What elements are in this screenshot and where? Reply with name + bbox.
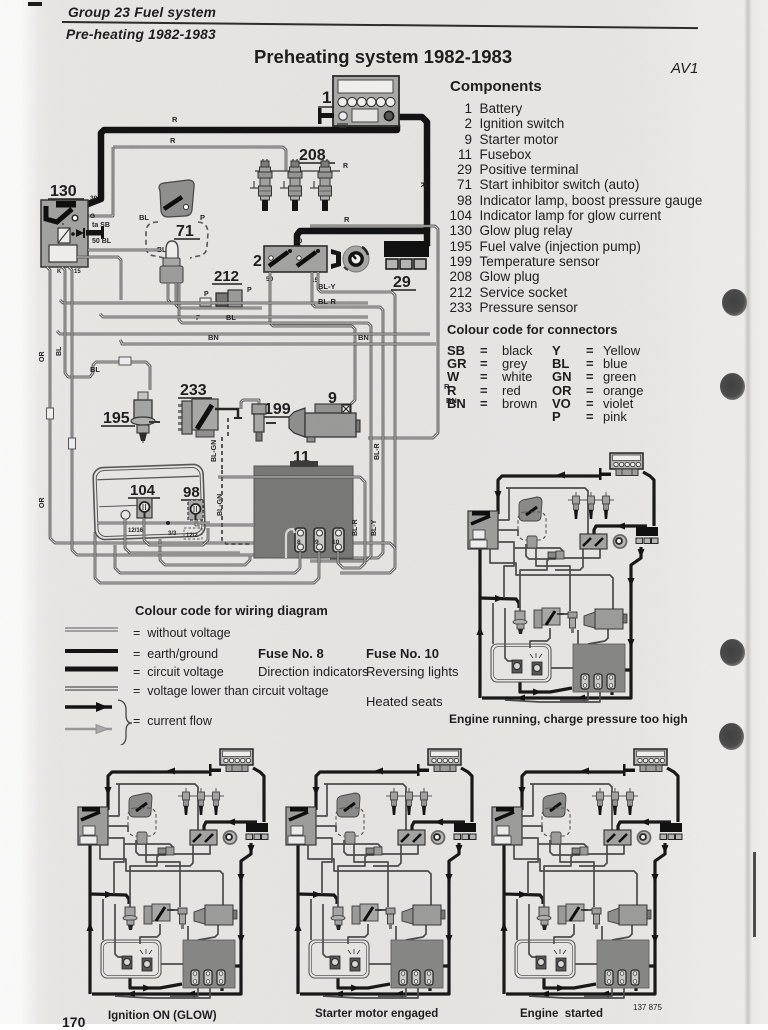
svg-text:BL-Y: BL-Y [371, 519, 378, 536]
svg-text:BL: BL [139, 213, 149, 222]
svg-text:R: R [170, 136, 176, 145]
svg-text:R: R [172, 115, 178, 124]
svg-text:OR: OR [39, 352, 46, 363]
svg-text:3/3: 3/3 [168, 531, 177, 537]
svg-text:R: R [343, 163, 348, 170]
svg-text:BN: BN [358, 333, 369, 342]
svg-text:BL: BL [90, 365, 100, 374]
svg-text:12/16: 12/16 [128, 528, 144, 534]
svg-text:BL-Y: BL-Y [318, 282, 336, 291]
svg-text:2: 2 [253, 253, 262, 270]
svg-text:98: 98 [183, 484, 200, 501]
svg-text:BL: BL [56, 346, 63, 356]
svg-text:BN: BN [208, 333, 219, 342]
svg-text:30: 30 [295, 238, 303, 245]
svg-text:199: 199 [264, 401, 291, 418]
svg-text:212: 212 [214, 268, 239, 285]
svg-text:K: K [57, 269, 62, 275]
svg-text:1: 1 [322, 88, 331, 107]
svg-text:8: 8 [297, 539, 301, 546]
svg-text:10: 10 [332, 539, 340, 546]
svg-text:BL-GN: BL-GN [211, 440, 218, 462]
svg-text:29: 29 [393, 274, 411, 291]
svg-text:P: P [247, 287, 252, 294]
svg-text:R: R [419, 182, 428, 188]
svg-text:233: 233 [180, 382, 207, 399]
svg-text:15: 15 [74, 269, 81, 275]
svg-text:9: 9 [315, 539, 319, 546]
svg-text:BL-R: BL-R [352, 519, 359, 536]
svg-text:P: P [200, 213, 205, 222]
svg-text:195: 195 [103, 410, 130, 427]
svg-text:BL-GN: BL-GN [217, 494, 224, 516]
svg-text:P: P [204, 291, 209, 298]
svg-text:71: 71 [176, 223, 194, 240]
svg-text:BL-R: BL-R [318, 297, 336, 306]
svg-text:R: R [444, 382, 450, 391]
svg-text:G: G [90, 213, 95, 220]
svg-text:ta SB: ta SB [92, 222, 110, 229]
svg-text:BL-R: BL-R [374, 443, 381, 460]
svg-text:R: R [344, 215, 350, 224]
svg-text:BN: BN [446, 396, 457, 405]
svg-text:BL: BL [226, 313, 236, 322]
svg-text:130: 130 [50, 183, 77, 200]
svg-text:12/2: 12/2 [186, 533, 198, 539]
svg-text:104: 104 [130, 482, 156, 499]
svg-text:30: 30 [90, 195, 98, 202]
svg-text:OR: OR [39, 498, 46, 509]
svg-text:50 BL: 50 BL [92, 238, 112, 245]
